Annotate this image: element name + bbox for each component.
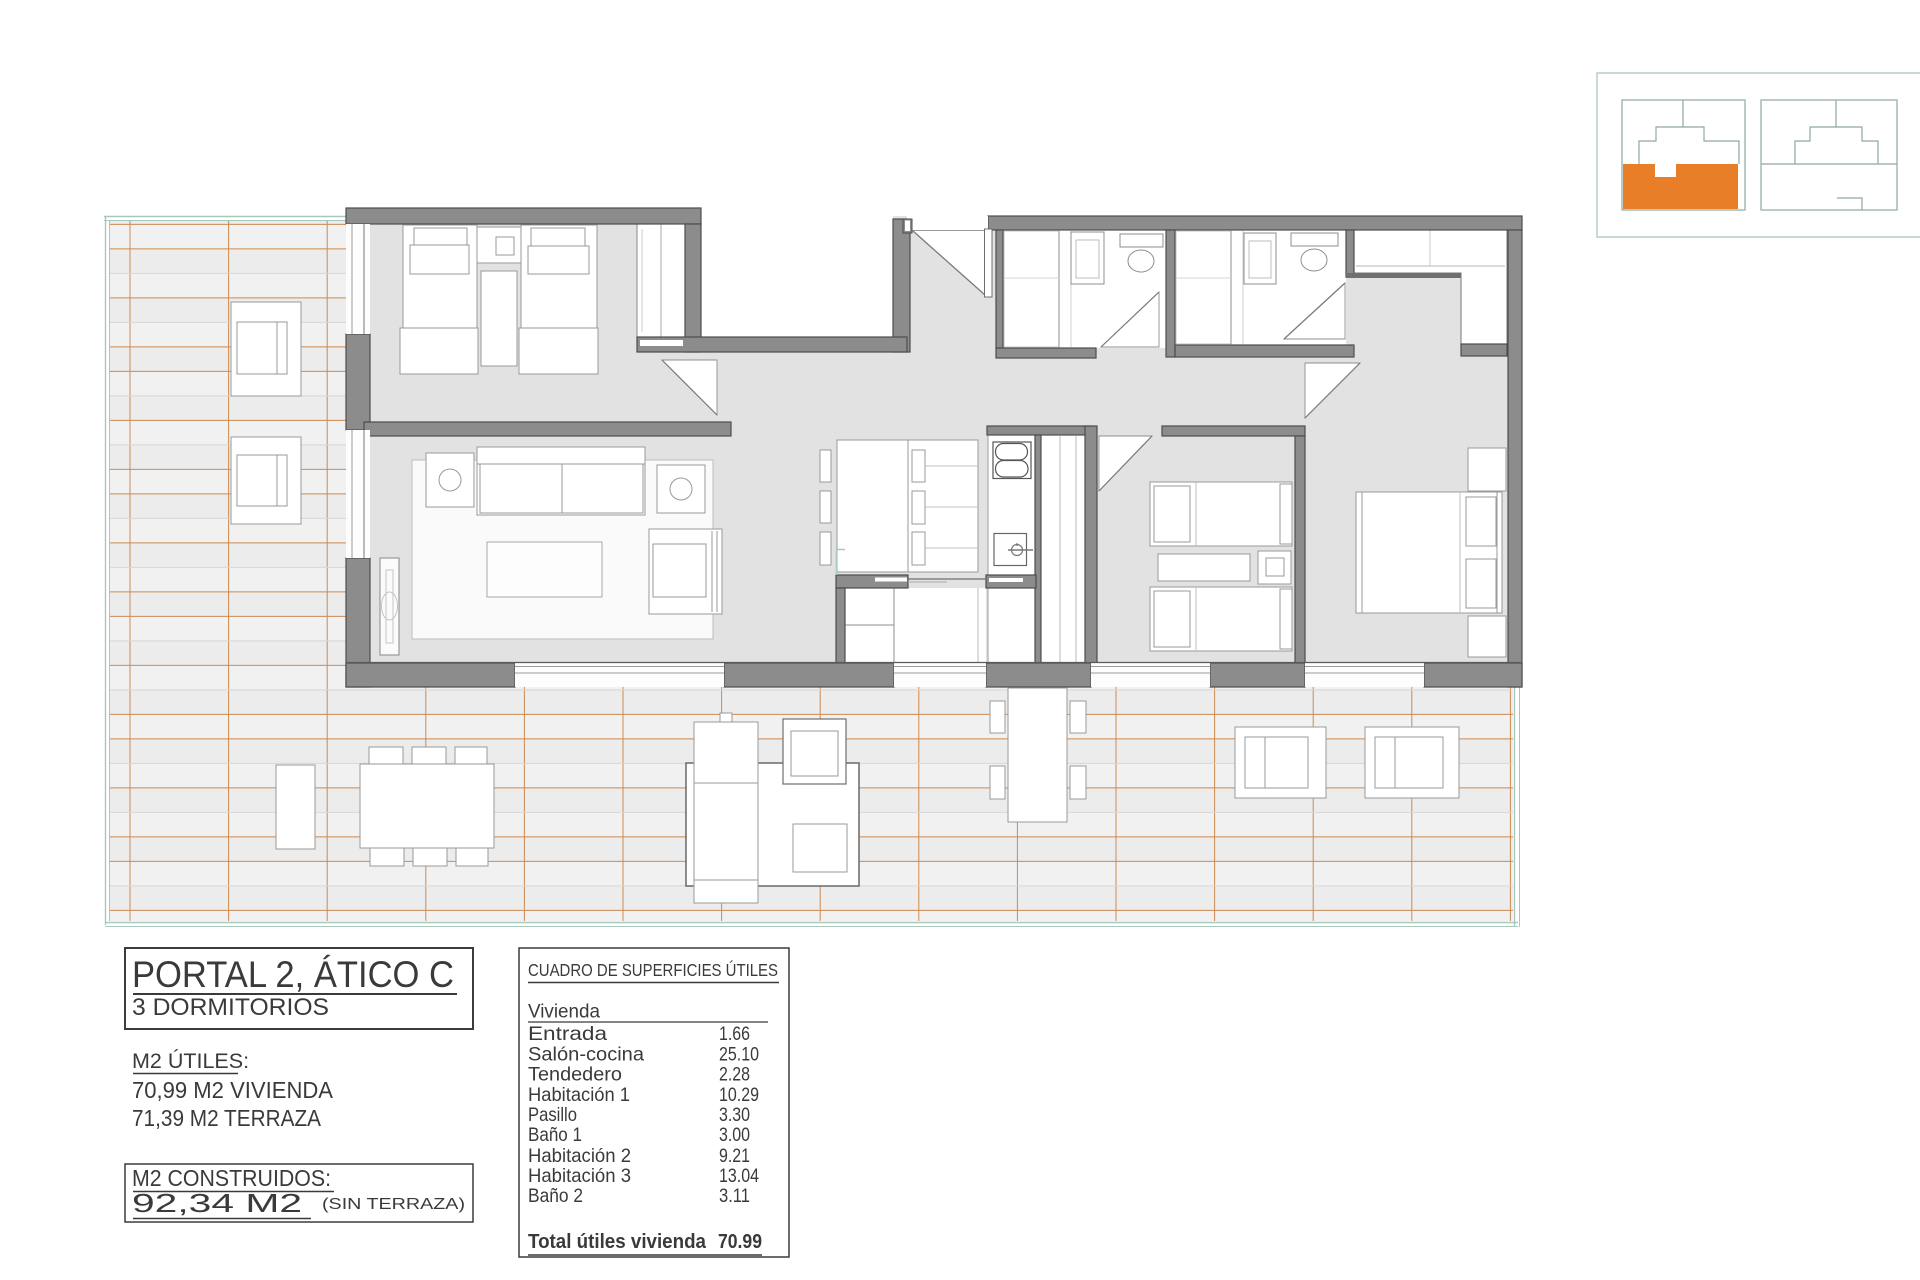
svg-text:Baño 2: Baño 2: [528, 1185, 583, 1207]
svg-text:70,99 M2 VIVIENDA: 70,99 M2 VIVIENDA: [132, 1077, 334, 1103]
svg-text:CUADRO DE SUPERFICIES ÚTILES: CUADRO DE SUPERFICIES ÚTILES: [528, 960, 778, 980]
svg-text:Entrada: Entrada: [528, 1023, 607, 1045]
svg-text:3.30: 3.30: [719, 1104, 750, 1126]
svg-text:70.99: 70.99: [718, 1231, 762, 1253]
svg-text:25.10: 25.10: [719, 1044, 759, 1066]
svg-text:10.29: 10.29: [719, 1084, 759, 1106]
svg-text:3.11: 3.11: [719, 1185, 750, 1207]
svg-text:3.00: 3.00: [719, 1124, 750, 1146]
svg-text:Total útiles vivienda: Total útiles vivienda: [528, 1231, 707, 1253]
svg-text:Pasillo: Pasillo: [528, 1104, 577, 1126]
svg-text:Salón-cocina: Salón-cocina: [528, 1044, 644, 1066]
svg-text:Vivienda: Vivienda: [528, 1001, 600, 1023]
svg-text:Habitación 1: Habitación 1: [528, 1084, 630, 1106]
svg-text:2.28: 2.28: [719, 1064, 750, 1086]
svg-text:(SIN TERRAZA): (SIN TERRAZA): [322, 1196, 465, 1213]
svg-text:1.66: 1.66: [719, 1023, 750, 1045]
svg-text:13.04: 13.04: [719, 1165, 759, 1187]
svg-text:3 DORMITORIOS: 3 DORMITORIOS: [132, 994, 329, 1021]
svg-text:Habitación 3: Habitación 3: [528, 1165, 631, 1187]
svg-text:71,39 M2 TERRAZA: 71,39 M2 TERRAZA: [132, 1105, 322, 1131]
svg-text:PORTAL 2, ÁTICO C: PORTAL 2, ÁTICO C: [132, 954, 454, 995]
svg-text:Tendedero: Tendedero: [528, 1064, 622, 1086]
svg-text:Habitación 2: Habitación 2: [528, 1145, 631, 1167]
svg-text:9.21: 9.21: [719, 1145, 750, 1167]
svg-text:92,34 M2: 92,34 M2: [132, 1188, 302, 1218]
svg-text:Baño 1: Baño 1: [528, 1124, 582, 1146]
svg-text:M2 ÚTILES:: M2 ÚTILES:: [132, 1048, 249, 1073]
